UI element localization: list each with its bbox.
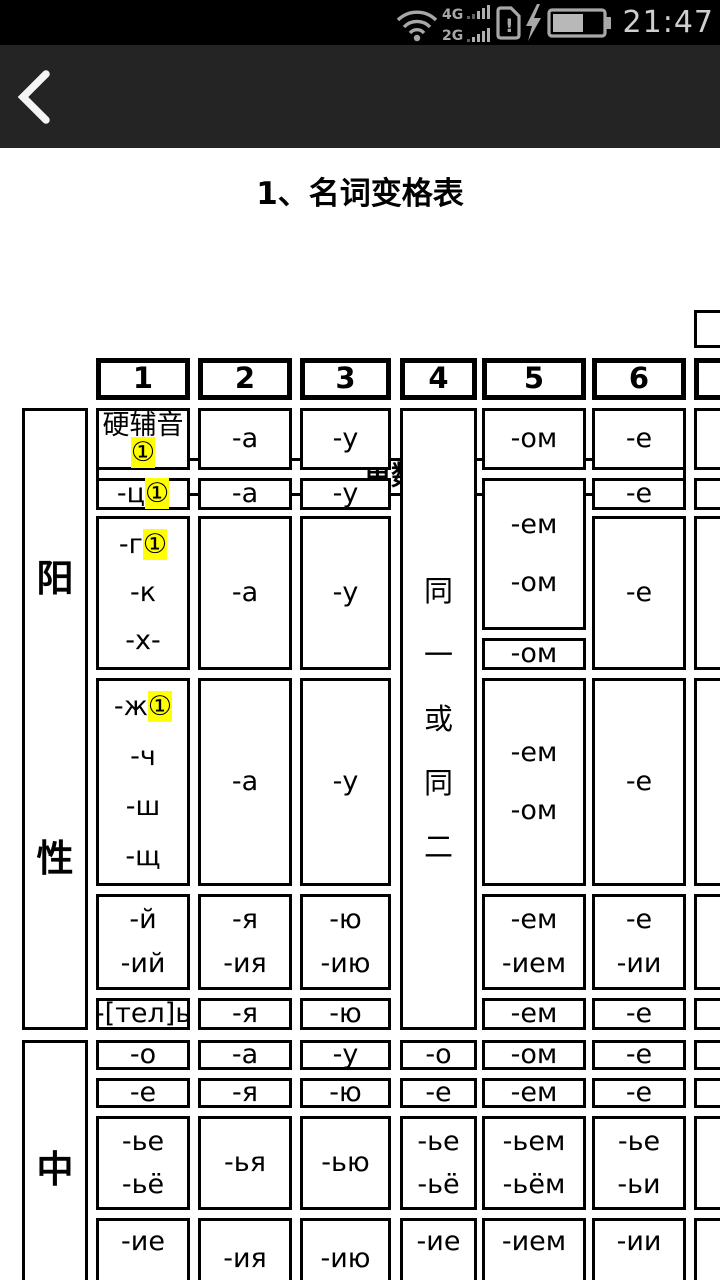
cell-text-line: 二 — [424, 832, 453, 862]
cell-text-line: -ом — [511, 782, 558, 840]
table-cell-c6-r7: -е — [592, 1040, 686, 1070]
back-button[interactable] — [8, 65, 72, 129]
cell-text-line: 6 — [629, 363, 649, 395]
table-cell-c5-h2: 5 — [482, 358, 586, 400]
cell-text-line: -е — [626, 898, 652, 942]
table-cell-c1-r6: -[тел]ь — [96, 998, 190, 1030]
cell-text-line: -ья — [224, 1148, 266, 1178]
app-bar — [0, 45, 720, 148]
cell-text-line: -ж① — [114, 682, 172, 732]
cell-text-line: -ье — [122, 1120, 164, 1163]
table-cell-c1-r9: -ье-ьё — [96, 1116, 190, 1210]
footnote-1-highlight: ① — [148, 691, 172, 722]
cell-text-line: 中 — [37, 1150, 74, 1191]
table-cell-c6-r10: -ии — [592, 1218, 686, 1280]
table-cell-c7-h1 — [694, 310, 720, 348]
cell-text-line: -а — [232, 1040, 258, 1070]
cell-text-line: -ьё — [417, 1163, 459, 1206]
cell-text-line: -ом — [511, 424, 558, 454]
cell-text-line: -ем — [511, 496, 558, 554]
cell-text-line: -у — [333, 479, 359, 509]
cell-text-line: -й — [129, 898, 156, 942]
cell-text-line: -ю — [329, 1078, 361, 1108]
table-cell-c7-r9 — [694, 1116, 720, 1210]
table-cell-c2-r2: -а — [198, 478, 292, 510]
table-cell-c4-masc: 同一或同二 — [400, 408, 477, 1030]
cell-text-line: -е — [626, 479, 652, 509]
cell-text-line: -ие — [121, 1227, 165, 1257]
table-cell-c1-h2: 1 — [96, 358, 190, 400]
status-icons-svg: 4G 2G ! — [395, 0, 615, 45]
cell-text-line: 同 — [424, 768, 453, 798]
cell-text-line: -ш — [126, 782, 160, 832]
table-cell-c3-r7: -у — [300, 1040, 391, 1070]
cell-text-line: -ем — [511, 724, 558, 782]
cell-text-line: -г① — [119, 521, 167, 569]
status-icons: 4G 2G ! — [395, 0, 714, 45]
table-cell-c7-r6 — [694, 998, 720, 1030]
cell-text-line: -ем — [511, 999, 558, 1029]
cell-text-line: -ом — [511, 554, 558, 612]
cell-text-line: -ьё — [122, 1163, 164, 1206]
table-cell-c7-r3 — [694, 516, 720, 670]
cell-text-line: -ием — [502, 942, 566, 986]
table-cell-c2-r9: -ья — [198, 1116, 292, 1210]
footnote-1-highlight: ① — [131, 437, 155, 468]
cell-text-line: -ю — [329, 999, 361, 1029]
svg-text:4G: 4G — [442, 7, 463, 23]
cell-text-line: -к — [130, 569, 156, 617]
table-cell-c5-r10: -ием — [482, 1218, 586, 1280]
cell-text-line: -ем — [511, 898, 558, 942]
cell-text-line: -ье — [417, 1120, 459, 1163]
table-cell-c1-r7: -о — [96, 1040, 190, 1070]
cell-text-line: -у — [333, 424, 359, 454]
table-cell-c6-r4: -е — [592, 678, 686, 886]
table-cell-c1-r1: 硬辅音① — [96, 408, 190, 470]
cell-text-line: -о — [425, 1040, 451, 1070]
table-cell-c1-r8: -е — [96, 1078, 190, 1108]
table-cell-head-neut: 中 — [22, 1040, 88, 1280]
table-cell-c2-h2: 2 — [198, 358, 292, 400]
table-cell-c1-r2: -ц① — [96, 478, 190, 510]
table-cell-c7-r8 — [694, 1078, 720, 1108]
table-cell-c6-r1: -е — [592, 408, 686, 470]
cell-text-line: -[тел]ь — [95, 999, 191, 1029]
cell-text-line: -е — [626, 578, 652, 608]
cell-text-line: -я — [232, 898, 258, 942]
cell-text-line: 4 — [428, 363, 448, 395]
cell-text-line: 5 — [524, 363, 544, 395]
table-cell-c3-h2: 3 — [300, 358, 391, 400]
cell-text-line: -а — [232, 479, 258, 509]
table-cell-c3-r2: -у — [300, 478, 391, 510]
cell-text-line: -е — [130, 1078, 156, 1108]
table-cell-c6-h2: 6 — [592, 358, 686, 400]
cell-text-line: -а — [232, 578, 258, 608]
cell-text-line: -у — [333, 578, 359, 608]
cell-text-line: -ий — [121, 942, 166, 986]
cell-text-line: 一 — [424, 640, 453, 670]
clock: 21:47 — [619, 5, 714, 40]
cell-text-line: -я — [232, 999, 258, 1029]
table-cell-c4-r7: -о — [400, 1040, 477, 1070]
cell-text-line: -е — [626, 424, 652, 454]
table-cell-c6-r6: -е — [592, 998, 686, 1030]
cell-text-line: -ч — [130, 732, 156, 782]
cell-text-line: 硬辅音 — [103, 412, 184, 439]
cell-text-line: -у — [333, 767, 359, 797]
table-cell-c7-r5 — [694, 894, 720, 990]
cell-text-line: 2 — [235, 363, 255, 395]
table-cell-c1-r3: -г①-к-х- — [96, 516, 190, 670]
cell-text-line: -ю — [329, 898, 361, 942]
cell-text-line: 3 — [335, 363, 355, 395]
table-cell-c5-r1: -ом — [482, 408, 586, 470]
cell-text-line: -е — [626, 999, 652, 1029]
cell-text-line: -е — [626, 1040, 652, 1070]
table-cell-c3-r10: -ию — [300, 1218, 391, 1280]
table-cell-c2-r3: -а — [198, 516, 292, 670]
table-cell-c4-r8: -е — [400, 1078, 477, 1108]
table-cell-c7-r10 — [694, 1218, 720, 1280]
cell-text-line: ① — [131, 439, 155, 466]
table-cell-c7-h2 — [694, 358, 720, 400]
cell-text-line: -е — [425, 1078, 451, 1108]
cell-text-line: -х- — [125, 617, 160, 665]
signal-bars-icon — [467, 5, 490, 42]
svg-text:2G: 2G — [442, 28, 463, 44]
footnote-1-highlight: ① — [145, 478, 169, 509]
cell-text-line: 1 — [133, 363, 153, 395]
table-cell-c3-r8: -ю — [300, 1078, 391, 1108]
cell-text-line: -е — [626, 767, 652, 797]
cell-text-line: 性 — [37, 839, 74, 879]
table-cell-c7-r2 — [694, 478, 720, 510]
table-cell-c4-r9: -ье-ьё — [400, 1116, 477, 1210]
cell-text-line: -ием — [502, 1227, 566, 1257]
declension-table[interactable]: 数 性 格 单数 123456硬辅音①-а-у-ом-е-ц①-а-у-е-г①… — [0, 148, 720, 1280]
back-chevron-icon — [10, 67, 70, 127]
cell-text-line: -ем — [511, 1078, 558, 1108]
table-cell-c2-r4: -а — [198, 678, 292, 886]
table-cell-c3-r6: -ю — [300, 998, 391, 1030]
sim-alert-icon: ! — [498, 8, 519, 38]
table-cell-c3-r5: -ю-ию — [300, 894, 391, 990]
cell-text-line: -ье — [618, 1120, 660, 1163]
table-cell-c6-r8: -е — [592, 1078, 686, 1108]
cell-text-line: -ом — [511, 639, 558, 669]
table-cell-c1-r10: -ие — [96, 1218, 190, 1280]
table-cell-c7-r1 — [694, 408, 720, 470]
table-cell-c3-r9: -ью — [300, 1116, 391, 1210]
cell-text-line: -а — [232, 767, 258, 797]
table-cell-c4-h2: 4 — [400, 358, 477, 400]
cell-text-line: -ьём — [503, 1163, 566, 1206]
table-cell-c7-r4 — [694, 678, 720, 886]
table-cell-c2-r6: -я — [198, 998, 292, 1030]
cell-text-line: -у — [333, 1040, 359, 1070]
charging-bolt-icon — [526, 4, 541, 41]
cell-text-line: -ию — [320, 942, 370, 986]
cell-text-line: -ии — [617, 942, 662, 986]
table-cell-c6-r5: -е-ии — [592, 894, 686, 990]
phone-screen: 4G 2G ! — [0, 0, 720, 1280]
table-cell-c1-r5: -й-ий — [96, 894, 190, 990]
footnote-1-highlight: ① — [143, 529, 167, 560]
table-cell-c3-r3: -у — [300, 516, 391, 670]
table-cell-c5-r4: -ем-ом — [482, 678, 586, 886]
cell-text-line: -е — [626, 1078, 652, 1108]
cell-text-line: 同 — [424, 576, 453, 606]
cell-text-line: -ия — [223, 1244, 267, 1274]
table-cell-c6-r9: -ье-ьи — [592, 1116, 686, 1210]
cell-text-line: -я — [232, 1078, 258, 1108]
status-bar: 4G 2G ! — [0, 0, 720, 45]
table-cell-c3-r4: -у — [300, 678, 391, 886]
table-cell-c2-r10: -ия — [198, 1218, 292, 1280]
cell-text-line: -ом — [511, 1040, 558, 1070]
cell-text-line: -ие — [417, 1227, 461, 1257]
table-cell-c5-r5: -ем-ием — [482, 894, 586, 990]
cell-text-line: -а — [232, 424, 258, 454]
wifi-icon — [398, 12, 436, 41]
cell-text-line: -ьем — [503, 1120, 566, 1163]
table-cell-c5-r8: -ем — [482, 1078, 586, 1108]
cell-text-line: -ью — [321, 1148, 369, 1178]
battery-icon — [549, 10, 611, 36]
table-cell-c2-r5: -я-ия — [198, 894, 292, 990]
table-cell-c4-r10: -ие — [400, 1218, 477, 1280]
table-cell-head-masc: 阳性 — [22, 408, 88, 1030]
table-cell-c7-r7 — [694, 1040, 720, 1070]
svg-text:!: ! — [505, 15, 514, 37]
table-cell-c2-r8: -я — [198, 1078, 292, 1108]
table-cell-c2-r7: -а — [198, 1040, 292, 1070]
table-cell-c6-r3: -е — [592, 516, 686, 670]
table-cell-c2-r1: -а — [198, 408, 292, 470]
cell-text-line: -ия — [223, 942, 267, 986]
network-type-badge: 4G 2G — [442, 7, 463, 44]
cell-text-line: -ии — [617, 1227, 662, 1257]
table-cell-c5-s1: -ем-ом — [482, 478, 586, 630]
table-cell-c3-r1: -у — [300, 408, 391, 470]
table-cell-c5-s2: -ом — [482, 638, 586, 670]
table-cell-c5-r7: -ом — [482, 1040, 586, 1070]
cell-text-line: -ц① — [117, 479, 169, 509]
cell-text-line: -ию — [320, 1244, 370, 1274]
cell-text-line: -о — [130, 1040, 156, 1070]
table-cell-c5-r6: -ем — [482, 998, 586, 1030]
table-cell-c5-r9: -ьем-ьём — [482, 1116, 586, 1210]
cell-text-line: 阳 — [37, 559, 74, 599]
cell-text-line: -ьи — [617, 1163, 660, 1206]
cell-text-line: 或 — [424, 704, 453, 734]
cell-text-line: -щ — [125, 832, 160, 882]
table-cell-c6-r2: -е — [592, 478, 686, 510]
table-cell-c1-r4: -ж①-ч-ш-щ — [96, 678, 190, 886]
